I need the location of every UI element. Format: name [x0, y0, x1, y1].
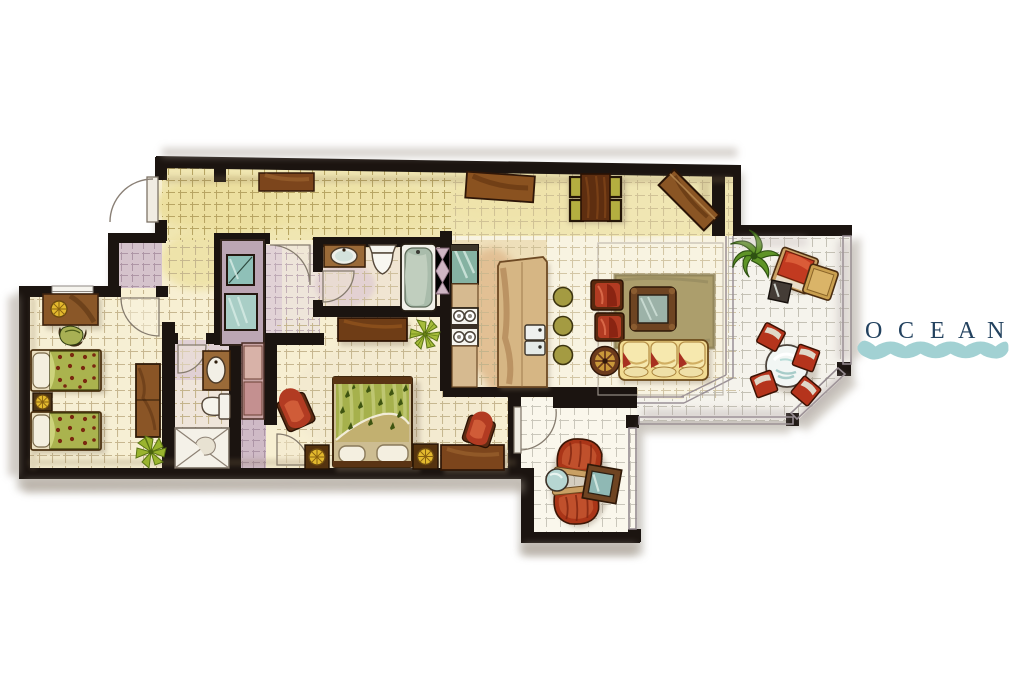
svg-text:C: C: [898, 318, 914, 344]
svg-text:N: N: [987, 318, 1004, 344]
svg-text:O: O: [865, 318, 882, 344]
svg-text:A: A: [958, 318, 976, 344]
svg-text:E: E: [930, 318, 945, 344]
